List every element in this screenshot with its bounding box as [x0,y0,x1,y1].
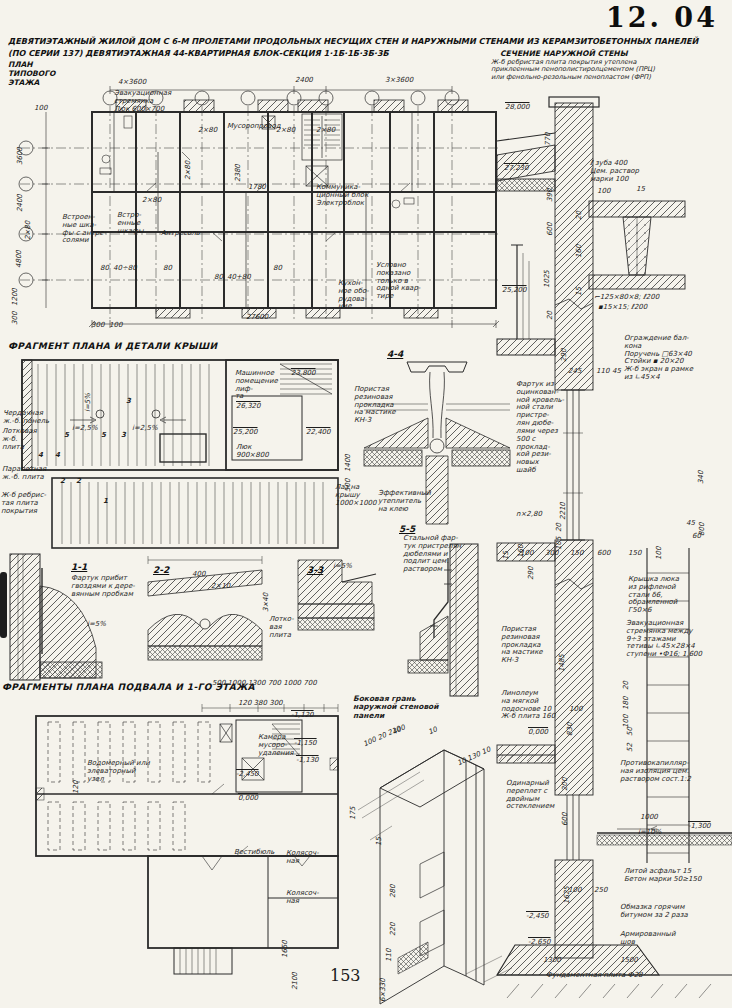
label-steel-apron-55: Стальной фар- тук пристрелян дюбелями и … [403,535,461,574]
mark-4b: 4 [55,451,60,459]
dim-panel-110: 110 [385,949,393,962]
dim-830: 830 [566,723,574,736]
dim-105: 105 [555,537,563,550]
dim-20-d: 20 [622,681,630,690]
label-refuse-room: Камера мусоро- удаления [258,734,293,757]
label-gasket-ws: Пористая резиновая прокладка на мастике … [501,626,543,665]
dim-panel-6x330: 6×330 [379,978,387,1002]
label-bitumen: Обмазка горячим битумом за 2 раза [620,904,688,920]
label-zinc-apron: Фартук из оцинкован- ной кровель- ной ст… [516,381,564,475]
title-line1: ДЕВЯТИЭТАЖНЫЙ ЖИЛОЙ ДОМ С 6-М ПРОЛЕТАМИ … [8,36,698,46]
dim-2x80-b: 2×80 [276,126,295,134]
dim-20-a: 20 [546,311,554,320]
dim-45-a: 45 [612,367,621,375]
dim-basement-row2: 120 380 300 [238,699,283,707]
label-anticapillary: Противокапилляр- ная изоляция цем. раств… [620,760,691,783]
dim-80-b: 80 [163,264,172,272]
dim-2100: 2100 [291,972,299,990]
label-evac-ladder: Эвакуационная стремянка Люк 600×700 [114,90,171,113]
dim-bay3: 3×3600 [385,76,413,84]
label-attic-panel: Чердачная ж.-б. панель [3,410,49,426]
sheet-code: 12. 04 [606,2,718,33]
mark-5b: 5 [64,431,69,439]
wall-section-heading: СЕЧЕНИЕ НАРУЖНОЙ СТЕНЫ [500,49,628,58]
dim-v4800: 4800 [15,250,23,268]
dim-2x80-d: 2×80 [142,196,161,204]
dim-150-row-b: 150 [628,549,641,557]
section-33-title: 3-3 [307,565,323,575]
dim-100-d: 100 [569,705,582,713]
elev-m1130: -1,130 [296,756,319,764]
dim-20-c: 20 [555,523,563,532]
dim-100-c: 100 [622,715,630,728]
dim-180: 180 [622,697,630,710]
dim-2x80-c: 2×80 [316,126,335,134]
label-foundation-slab: Фундаментная плита Ф28 [546,972,643,980]
dim-80-c: 80 [214,273,223,281]
dim-1400: 1400 [344,454,352,472]
label-kitchen-equip: Кухон- ное обо- рудова- ние [338,280,369,311]
elev-25200: 25,200 [233,428,258,436]
dim-45-b: 45 [686,519,695,527]
label-pram2: Колясоч- ная [286,890,319,906]
slope-10: i=10% [638,828,661,836]
mark-3b: 3 [121,431,126,439]
label-comm-block: Коммуника- ционный блок Электроблок [316,184,368,207]
label-hatch-900x800: Люк 900×800 [236,444,269,460]
label-gasket-44: Пористая резиновая прокладка на мастике … [354,386,396,425]
slope-5-roof: i=5% [84,393,92,412]
dim-2x80-a: 2×80 [198,126,217,134]
dim-total: 27600 [246,313,268,321]
slope-25-a: i=2,5% [72,424,98,432]
label-plan-note: Условно показано только в одной квар- ти… [376,262,420,301]
dim-panel-15: 15 [375,837,383,846]
elev-23800: 23,800 [291,369,316,377]
dim-400-s22: 400 [192,570,205,578]
dim-basement-row1: 500 1000 1300 700 1000 700 [212,679,317,687]
dim-60: 60 [692,532,701,540]
label-apron-nails: Фартук прибит гвоздями к дере- вянным пр… [71,575,135,598]
slope-5-s33: i=5% [333,562,352,570]
label-wardrobe-mezz: Встроен- ные шка- фы с антре- солями [62,214,106,245]
elev-m2650-ws: -2,650 [528,938,551,946]
label-ribbed-slab: Ж-б ребрис- тая плита покрытия [1,492,46,515]
dim-v120: 120 [72,781,80,794]
elev-m1300: -1,300 [688,822,711,830]
page-number: 153 [330,966,361,985]
dim-1300: 1300 [543,956,561,964]
label-asphalt: Литой асфальт 15 Бетон марки 50≥150 [624,868,701,884]
elev-22400: 22,400 [306,428,331,436]
elev-m2450: -2,450 [236,770,259,778]
elev-26320: 26,320 [236,402,261,410]
dim-100-top: 100 [34,104,47,112]
elev-0000: 0,000 [238,794,258,802]
dim-50: 50 [626,727,634,736]
dim-300-row: 300 [545,549,558,557]
dim-1650: 1650 [281,940,289,958]
mark-2b: 2 [76,477,81,485]
slope-25-b: i=2,5% [132,424,158,432]
dim-1780: 1780 [248,183,266,191]
dim-20-b: 20 [575,211,583,220]
dim-80-a: 80 [100,264,109,272]
dim-100-tooth: 100 [597,187,610,195]
dim-1025: 1025 [543,270,551,288]
label-mezzanine: Антресоль [161,230,200,238]
dim-100: 100 [109,321,122,329]
label-n-floors: n×2,80 [516,510,542,518]
elev-m1120: -1,120 [291,711,314,719]
elev-27230: 27,230 [504,164,529,172]
typical-plan-heading: ПЛАН ТИПОВОГО ЭТАЖА [8,60,55,87]
label-tray-slab-s22: Лотко- вая плита [269,616,294,639]
dim-2380: 2380 [234,164,242,182]
dim-40-80b: 40+80 [227,273,251,281]
dim-100-row-b: 100 [655,547,663,560]
label-pram1: Колясоч- ная [286,850,319,866]
dim-245: 245 [568,367,581,375]
label-angle1: ⌐125×80×8; ℓ200 [594,293,659,301]
dim-panel-175: 175 [349,807,357,820]
elev-0000-ws: 0,000 [528,728,548,736]
label-reinforced-seam: Армированный шов [620,931,675,947]
elev-28000: 28,000 [505,103,530,111]
dim-15-b: 15 [575,287,583,296]
label-machine-room: Машинное помещение лиф- та [235,370,278,401]
dim-bay2: 2400 [295,76,313,84]
label-hatch-cover: Крышка люка из рифленой стали δ6, обрамл… [628,576,679,615]
dim-bay1: 4×3600 [118,78,146,86]
drawing-sheet: 12. 04 ДЕВЯТИЭТАЖНЫЙ ЖИЛОЙ ДОМ С 6-М ПРО… [0,0,732,1008]
dim-600-row: 600 [597,549,610,557]
dim-80-d: 80 [273,264,282,272]
scan-smudge [0,572,7,638]
section-11-title: 1-1 [71,562,87,572]
mark-2a: 2 [60,477,65,485]
dim-2210: 2210 [559,502,567,520]
dim-600-b: 600 [561,813,569,826]
dim-290-a: 290 [560,349,568,362]
label-refuse-chute: Мусоропровод [227,123,281,131]
elev-25200-ws: 25,200 [502,286,527,294]
dim-v300: 300 [11,312,19,325]
dim-770: 770 [544,133,552,146]
label-lobby: Вестибюль [234,849,274,857]
label-balcony-rail: Ограждение бал- кона Поручень □63×40 Сто… [624,335,693,382]
dim-v1200: 1200 [11,288,19,306]
label-linoleum: Линолеум на мягкой подоснове 10 Ж-б плит… [501,690,555,721]
dim-150-row-a: 150 [570,549,583,557]
dim-15-row: 15 [502,551,510,560]
dim-300: 300 [91,321,104,329]
mark-1: 1 [103,497,108,505]
mark-3a: 3 [126,397,131,405]
title-line2: (ПО СЕРИИ 137) ДЕВЯТИЭТАЖНАЯ 44-КВАРТИРН… [8,48,389,58]
slope-5-s11: i=5% [87,620,106,628]
label-angle2: ▪15×15; ℓ200 [598,303,647,311]
dim-100-e: 100 [568,886,581,894]
panel-axon-drawing [346,714,504,1008]
dim-52: 52 [626,743,634,752]
dim-v2400: 2400 [16,194,24,212]
dim-250: 250 [594,886,607,894]
dim-600-a: 600 [546,223,554,236]
dim-15-tooth: 15 [636,185,645,193]
label-tooth: ℓ зуба 400 Цем. раствор марки 100 [590,160,639,183]
section-22-title: 2-2 [153,565,169,575]
dim-110: 110 [596,367,609,375]
section-55-title: 5-5 [399,524,415,534]
dim-2x80-f: 2×80 [184,161,192,180]
dim-panel-220: 220 [389,923,397,936]
dim-390: 390 [546,189,554,202]
label-wardrobe: Встро- енные шкафы [117,212,143,235]
dim-200: 200 [561,778,569,791]
dim-1000: 1000 [640,813,658,821]
dim-3x40-s22: 3×40 [262,593,270,612]
label-water-unit: Водомерный или элеваторный узел [87,760,150,783]
dim-panel-280: 280 [389,885,397,898]
dim-1485: 1485 [558,654,566,672]
dim-160-b: 160 [517,545,525,558]
dim-2x80-e: 2×80 [24,221,32,240]
dim-2x10-s22: 2×10 [211,582,230,590]
dim-290-b: 290 [527,567,535,580]
elev-m1150: -1,150 [294,739,317,747]
dim-340: 340 [697,471,705,484]
label-evac-ladder-ws: Эвакуационная стремянка между 9÷3 этажам… [626,620,702,659]
dim-v3600: 3600 [16,147,24,165]
mark-4a: 4 [38,451,43,459]
label-glazing: Одинарный переплет с двойным остеклением [506,780,554,811]
label-tray-slab: Лотковая ж-б. плита [2,428,37,451]
mark-5a: 5 [101,431,106,439]
wall-section-note: Ж-б ребристая плита покрытия утеплена пр… [491,59,655,81]
dim-160-a: 160 [575,245,583,258]
dim-40-80a: 40÷80 [113,264,137,272]
dim-1500: 1500 [620,956,638,964]
label-parapet-slab: Парапетная ж.-б. плита [2,466,46,482]
elev-m2450-ws: -2,450 [526,912,549,920]
